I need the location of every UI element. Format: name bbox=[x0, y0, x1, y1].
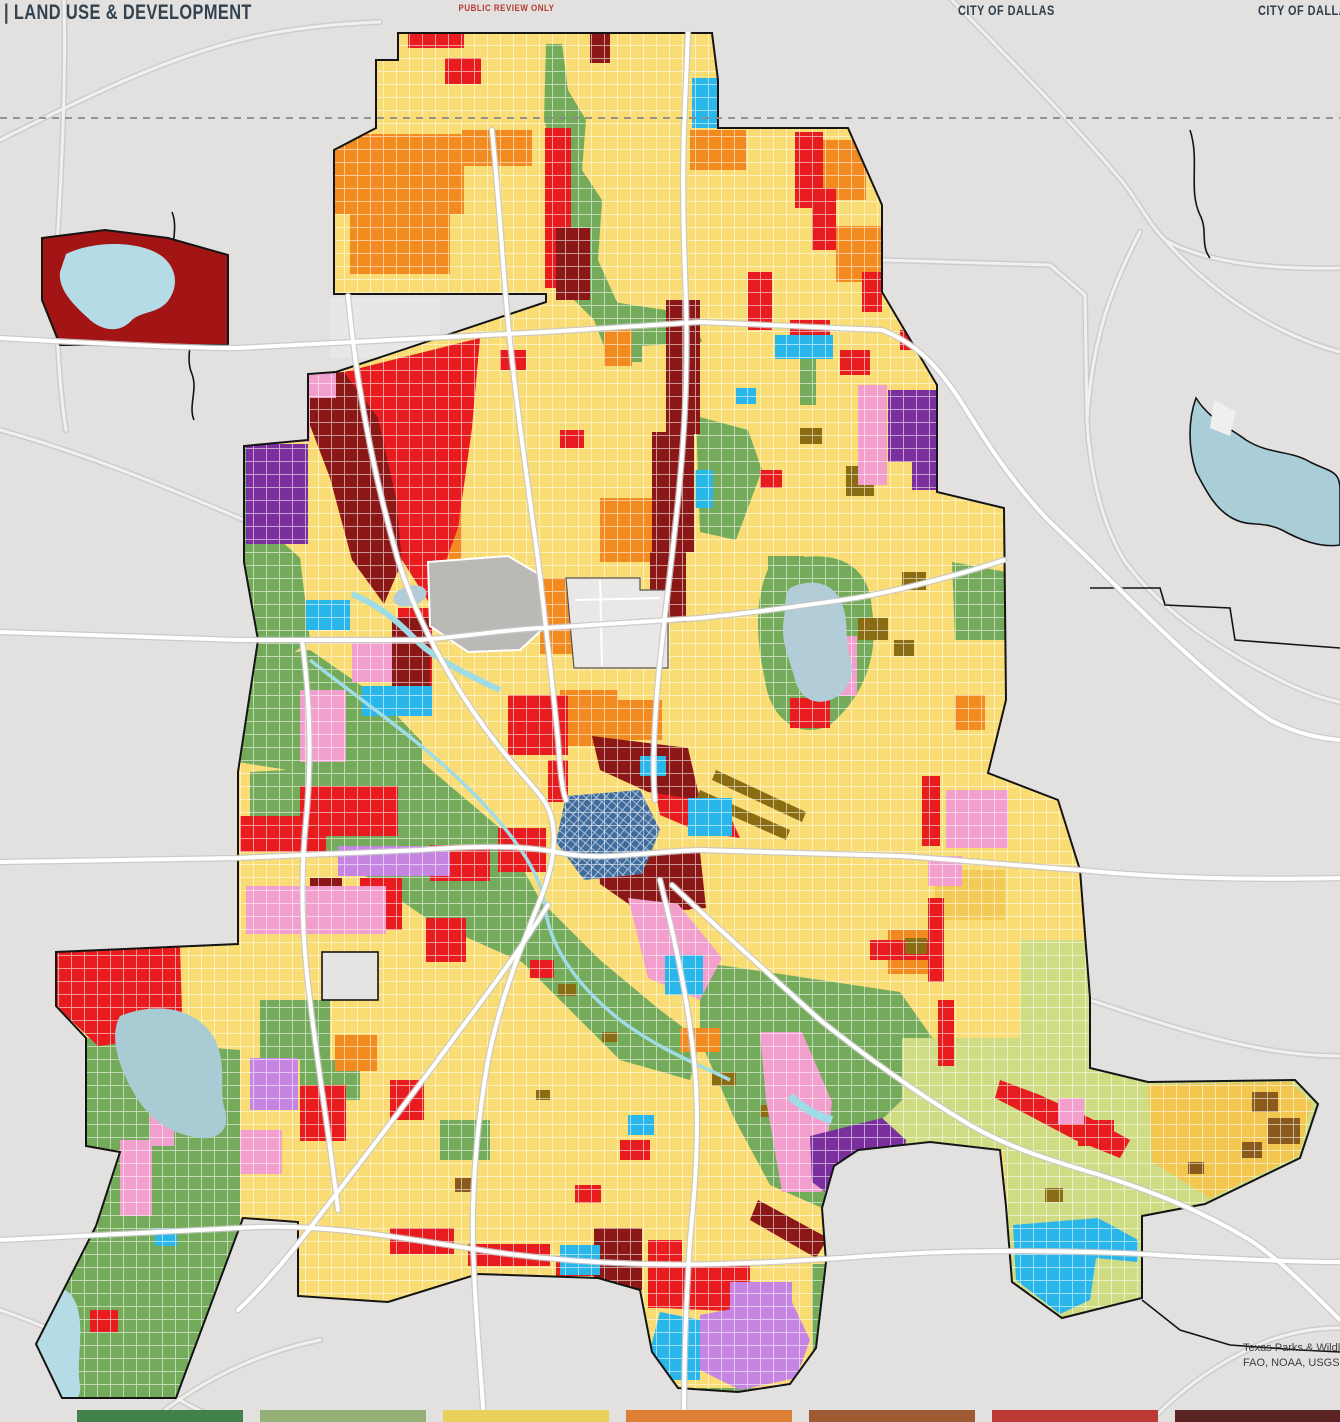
legend-swatch-3 bbox=[443, 1410, 609, 1422]
legend-swatch-7 bbox=[1175, 1410, 1340, 1422]
legend-swatch-4 bbox=[626, 1410, 792, 1422]
attribution-line-2: FAO, NOAA, USGS, E bbox=[1243, 1356, 1340, 1371]
city-label-dallas-2: CITY OF DALLAS bbox=[1258, 2, 1340, 18]
public-review-watermark: PUBLIC REVIEW ONLY bbox=[459, 3, 555, 13]
attribution-line-1: Texas Parks & Wildli bbox=[1243, 1341, 1340, 1356]
page-title: | LAND USE & DEVELOPMENT bbox=[4, 1, 252, 25]
legend-swatch-6 bbox=[992, 1410, 1158, 1422]
city-label-dallas-1: CITY OF DALLAS bbox=[958, 2, 1055, 18]
nw-exclave bbox=[42, 230, 228, 345]
legend-swatch-5 bbox=[809, 1410, 975, 1422]
legend-swatch-2 bbox=[260, 1410, 426, 1422]
legend-swatch-1 bbox=[77, 1410, 243, 1422]
map-attribution: Texas Parks & Wildli FAO, NOAA, USGS, E bbox=[1243, 1341, 1340, 1372]
map-page: | LAND USE & DEVELOPMENT PUBLIC REVIEW O… bbox=[0, 0, 1340, 1422]
cockrell-hill-enclave bbox=[322, 952, 378, 1000]
legend-bar bbox=[0, 1410, 1340, 1422]
map-canvas[interactable] bbox=[0, 0, 1340, 1422]
